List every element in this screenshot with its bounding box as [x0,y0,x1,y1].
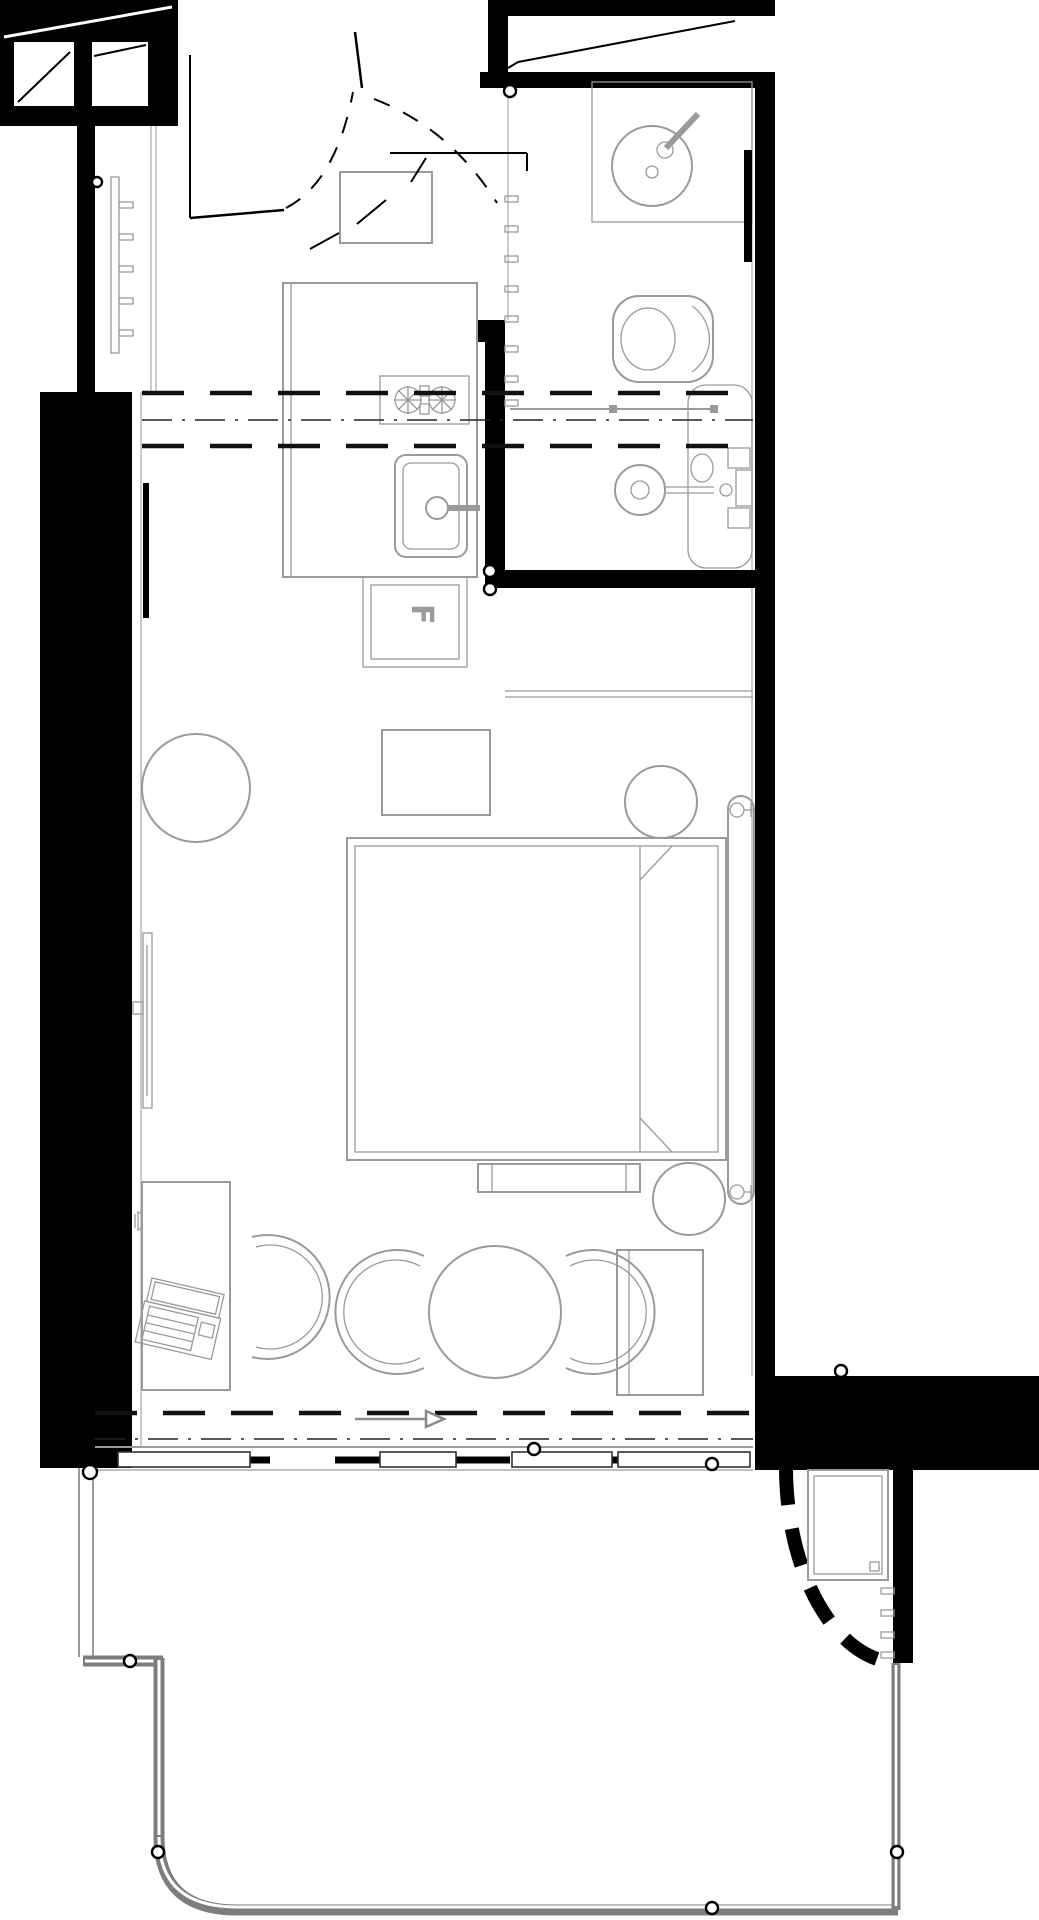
pouf [142,734,250,842]
radiator-tick [119,330,133,336]
window-frame [618,1452,750,1467]
wall-block-bottom-right [755,1376,1039,1470]
kitchen-counter [283,283,477,577]
glazing-line [508,62,518,68]
window-frame [118,1452,250,1467]
hinge-node [484,583,496,595]
shower-head [615,465,714,515]
fridge-label: F [404,604,439,625]
balcony [79,1465,903,1914]
glazing-line [18,52,70,102]
toilet [613,296,713,382]
survey-node [891,1846,903,1858]
survey-node [124,1655,136,1667]
survey-node [706,1458,718,1470]
shower-controls [691,448,752,528]
radiator-tick [119,266,133,272]
window-jamb [488,0,508,72]
bedside-stool [625,766,697,838]
kitchenette: F [283,196,518,667]
stove-burner [394,386,422,414]
hinge-node [484,565,496,577]
mirror [744,150,752,262]
wall-left-pier [40,392,132,1468]
survey-node [152,1846,164,1858]
wall-sconce [730,803,755,817]
window-sill-band [0,106,178,126]
swing-dash [310,233,339,249]
sliding-window-wall [95,1443,753,1470]
bed [347,838,726,1160]
bathroom [510,82,752,568]
wall-band [480,72,775,88]
survey-node [528,1443,540,1455]
basin-drain [646,166,658,178]
wall-bath-bottom [485,570,775,588]
survey-node [83,1465,97,1479]
bathroom-door-leaf [355,32,362,88]
screen-node [609,405,617,413]
glazing-line [518,21,735,62]
towel-rail [505,196,518,406]
headboard [728,796,754,1204]
bench [478,1164,640,1192]
ac-unit [808,1470,888,1580]
wall-top-band [508,0,775,16]
radiator-tick [119,202,133,208]
wardrobe [340,172,432,243]
dining-chair [335,1250,424,1374]
valve-node [92,177,102,187]
pivot-node [504,85,516,97]
window-mullion [74,42,92,108]
desk-chair [252,1235,330,1359]
bedside-stool [653,1163,725,1235]
louvers [881,1588,894,1658]
dining-table [429,1246,561,1378]
window-frame [512,1452,612,1467]
window-frame [380,1452,456,1467]
screen-node [710,405,718,413]
radiator-tick [119,234,133,240]
glazing-line [94,45,146,56]
side-table [382,730,490,815]
stove-burner [428,386,456,414]
wall-right [755,88,775,1376]
wall-track-bar [143,483,149,618]
wall-kitchen-column [485,342,505,570]
wall-sconce [730,1185,755,1199]
wall-right-lower [893,1467,913,1663]
dining-chair [566,1250,655,1374]
shower-tray [688,385,752,568]
tv [133,933,152,1108]
window-jamb-right [148,42,178,108]
bedroom-living [133,691,755,1395]
radiator-tick [119,298,133,304]
survey-node [835,1365,847,1377]
faucet-base [657,142,673,158]
window-jamb-left [0,42,14,108]
radiator [111,177,119,353]
wall-left-upper [77,126,95,392]
console [617,1250,703,1395]
floor-plan: F [0,0,1039,1920]
entry-door-leaf [190,210,284,218]
survey-node [706,1902,718,1914]
balcony-railing [83,1658,898,1910]
